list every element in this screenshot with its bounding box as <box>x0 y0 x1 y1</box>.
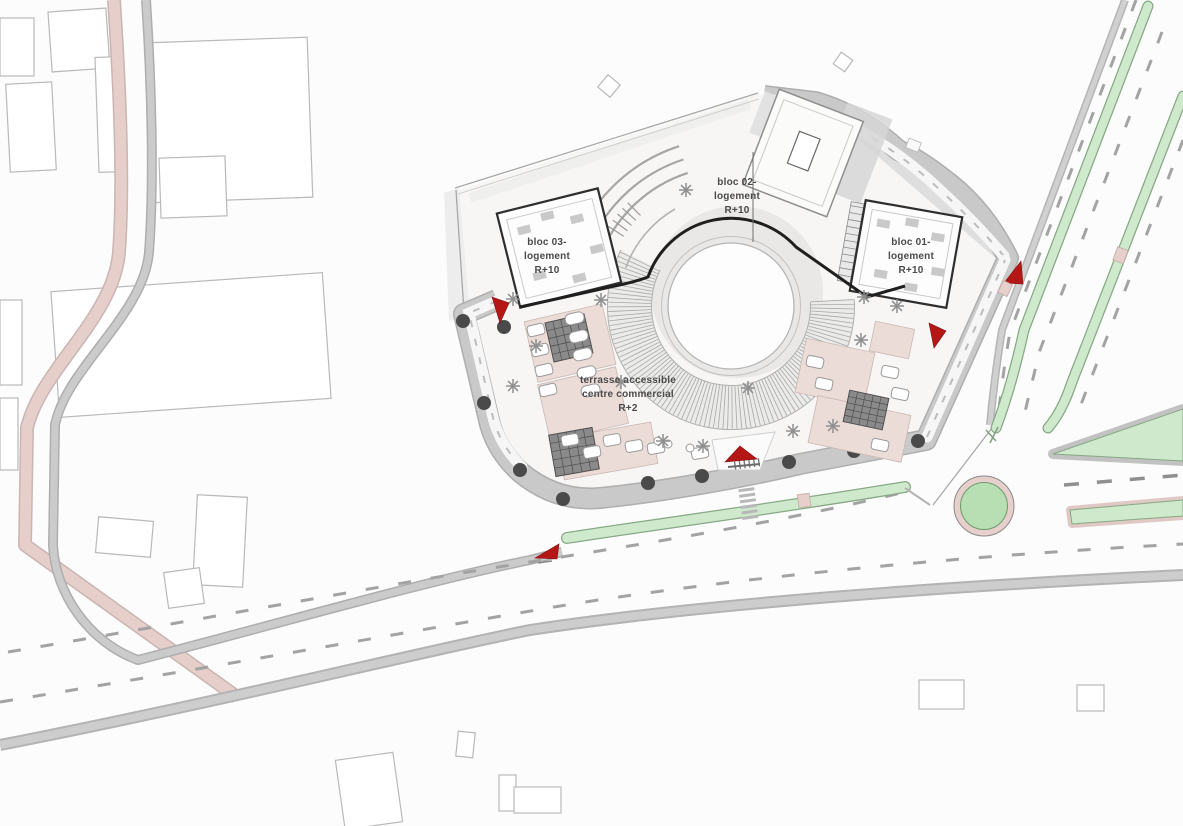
context-building <box>0 300 22 385</box>
tree-dot <box>695 469 709 483</box>
roundabout <box>954 476 1014 536</box>
tree-dot <box>513 463 527 477</box>
context-building <box>1077 685 1104 711</box>
tree-dot <box>477 396 491 410</box>
tree-dot <box>782 455 796 469</box>
context-building <box>193 495 248 587</box>
tree-icon <box>857 290 871 304</box>
context-building <box>0 18 34 76</box>
tree-icon <box>890 299 904 313</box>
tree-icon <box>614 375 628 389</box>
context-building <box>164 568 205 609</box>
tree-icon <box>506 379 520 393</box>
context-building <box>0 398 18 470</box>
context-building <box>6 82 57 172</box>
terrace-table <box>561 433 580 447</box>
terrace-table <box>603 433 622 447</box>
central-courtyard <box>668 243 794 369</box>
tree-icon <box>594 293 608 307</box>
tree-icon <box>854 333 868 347</box>
tree-icon <box>826 419 840 433</box>
tree-icon <box>696 439 710 453</box>
terrace-table <box>625 439 644 453</box>
tree-icon <box>741 381 755 395</box>
context-building <box>51 273 331 418</box>
median-crossing <box>797 493 811 508</box>
tree-icon <box>786 424 800 438</box>
tree-icon <box>529 339 543 353</box>
tree-icon <box>656 434 670 448</box>
tree-dot <box>911 434 925 448</box>
site-plan-drawing <box>0 0 1183 826</box>
context-building <box>456 731 476 758</box>
context-building <box>919 680 964 709</box>
context-building <box>335 752 402 826</box>
site-plan: bloc 03- logement R+10 bloc 02- logement… <box>0 0 1183 826</box>
tree-dot <box>641 476 655 490</box>
terrace-table <box>583 445 602 459</box>
context-building <box>514 787 561 813</box>
tree-dot <box>456 314 470 328</box>
tree-dot <box>497 320 511 334</box>
context-building <box>159 156 227 218</box>
context-building <box>96 517 154 558</box>
bloc-01 <box>836 198 962 308</box>
tree-icon <box>679 183 693 197</box>
tree-dot <box>556 492 570 506</box>
